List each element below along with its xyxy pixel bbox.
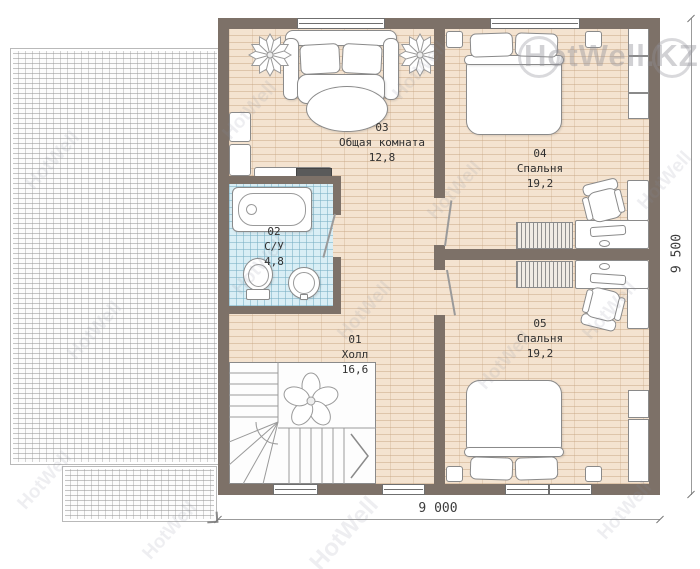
cabinet	[229, 112, 251, 142]
window	[490, 18, 580, 29]
wardrobe	[628, 25, 649, 56]
room-label-01: 01 Холл 16,6	[295, 332, 415, 377]
roof-area-bottom	[62, 466, 217, 522]
dimension-line-width	[218, 519, 660, 520]
sofa-back	[285, 30, 397, 46]
bathroom-wall-right	[333, 184, 341, 215]
room-area: 19,2	[480, 346, 600, 361]
room-area: 4,8	[224, 254, 324, 269]
wardrobe	[628, 56, 649, 93]
plant-icon	[282, 372, 340, 430]
interior-wall-bedrooms	[445, 249, 649, 260]
nightstand	[446, 466, 463, 482]
interior-wall-center	[434, 29, 445, 198]
bathtub-drain-icon	[246, 204, 257, 215]
pillow	[470, 456, 514, 480]
room-label-03: 03 Общая комната 12,8	[322, 120, 442, 165]
nightstand	[585, 466, 602, 482]
nightstand	[585, 31, 602, 48]
exterior-wall-right	[649, 18, 660, 495]
room-number: 01	[295, 332, 415, 347]
room-name: Общая комната	[322, 135, 442, 150]
bed	[466, 62, 562, 135]
room-number: 04	[480, 146, 600, 161]
bed	[466, 380, 562, 450]
wardrobe	[628, 93, 649, 119]
room-number: 05	[480, 316, 600, 331]
exterior-wall-top	[218, 18, 660, 29]
pillow	[515, 456, 559, 480]
wardrobe	[628, 390, 649, 418]
room-name: Спальня	[480, 161, 600, 176]
dimension-width-label: 9 000	[358, 501, 518, 516]
room-area: 12,8	[322, 150, 442, 165]
window	[297, 18, 385, 29]
cabinet	[229, 144, 251, 176]
window	[382, 484, 425, 495]
window	[505, 484, 592, 495]
sink-basin	[293, 272, 315, 294]
wardrobe	[628, 419, 649, 482]
sofa-cushion	[341, 43, 383, 75]
roof-area-left	[10, 48, 220, 465]
room-area: 16,6	[295, 362, 415, 377]
room-name: Холл	[295, 347, 415, 362]
interior-wall-center	[434, 245, 445, 270]
bathroom-wall-top	[229, 176, 341, 184]
nightstand	[446, 31, 463, 48]
pillow	[470, 32, 514, 57]
room-label-05: 05 Спальня 19,2	[480, 316, 600, 361]
room-number: 03	[322, 120, 442, 135]
floor-plan-canvas: 03 Общая комната 12,8 04 Спальня 19,2 02…	[0, 0, 700, 569]
bathroom-wall-right	[333, 257, 341, 306]
window	[273, 484, 318, 495]
dimension-line-height	[691, 18, 692, 495]
sink-tap-icon	[300, 294, 308, 300]
desk-return	[627, 288, 649, 329]
bathroom-wall-bottom	[229, 306, 341, 314]
toilet-tank	[246, 289, 270, 300]
room-name: Спальня	[480, 331, 600, 346]
room-number: 02	[224, 224, 324, 239]
dimension-height-label: 9 500	[670, 224, 685, 284]
plant-icon	[248, 33, 292, 77]
room-label-02: 02 С/У 4,8	[224, 224, 324, 269]
closet	[516, 222, 573, 249]
room-label-04: 04 Спальня 19,2	[480, 146, 600, 191]
room-name: С/У	[224, 239, 324, 254]
window-mullion	[548, 485, 550, 494]
interior-wall-center	[434, 315, 445, 484]
sofa-armrest	[383, 38, 399, 100]
bed-headboard	[464, 447, 564, 457]
room-area: 19,2	[480, 176, 600, 191]
desk-return	[627, 180, 649, 221]
mouse	[599, 240, 610, 247]
sofa-cushion	[299, 43, 341, 75]
mouse	[599, 263, 610, 270]
pillow	[515, 32, 559, 57]
closet	[516, 261, 573, 288]
